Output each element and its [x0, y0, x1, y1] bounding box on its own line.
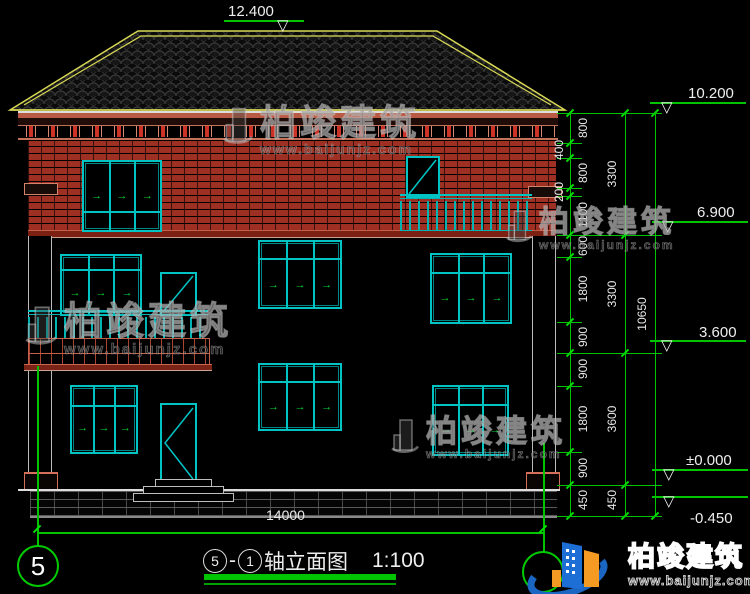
left-pilaster-plinth [24, 472, 58, 490]
window-opening-arrow-icon: → [77, 423, 88, 433]
window-mullion [93, 387, 95, 452]
window-opening-arrow-icon: → [122, 288, 133, 298]
title-separator: - [229, 549, 236, 573]
watermark-logo-icon [390, 416, 420, 464]
level-text: ±0.000 [686, 452, 732, 469]
dim-chain-overall [655, 113, 656, 516]
title-scale: 1:100 [372, 549, 425, 573]
dim-extension-line [557, 322, 582, 323]
window-mullion [286, 365, 288, 429]
dim-value: 3600 [605, 406, 619, 433]
window-mullion [482, 387, 484, 454]
dim-chain-inner [570, 113, 571, 516]
window-bot-right: →→→ [432, 385, 509, 456]
bottom-dim-line [37, 532, 544, 534]
window-mid-center: →→→ [258, 240, 342, 309]
title-underline-thin [204, 583, 396, 585]
dim-value: 900 [576, 359, 590, 379]
dim-value: 3300 [605, 161, 619, 188]
level-triangle-icon: ▽ [663, 468, 675, 481]
brand-logo-icon [524, 537, 620, 594]
dim-extension-line [557, 452, 582, 453]
window-opening-arrow-icon: → [489, 425, 500, 435]
dim-extension-line [557, 235, 662, 236]
window-bot-left: →→→ [70, 385, 138, 454]
dim-value: 800 [576, 118, 590, 138]
dim-extension-line [557, 485, 662, 486]
window-opening-arrow-icon: → [116, 191, 127, 201]
window-mullion [313, 365, 315, 429]
window-opening-arrow-icon: → [98, 423, 109, 433]
window-opening-arrow-icon: → [441, 425, 452, 435]
window-transom [434, 404, 507, 406]
window-opening-arrow-icon: → [465, 425, 476, 435]
window-opening-arrow-icon: → [466, 293, 477, 303]
window-opening-arrow-icon: → [268, 402, 279, 412]
dim-value: 3300 [605, 281, 619, 308]
level-triangle-icon: ▽ [662, 220, 674, 233]
dim-value: 450 [605, 490, 619, 510]
dim-value-overall: 10650 [635, 297, 649, 330]
window-transom [432, 272, 510, 274]
elevation-drawing: 12.400 ▽ →→→ →→→ →→→ [0, 0, 750, 594]
mid-balcony-slab [24, 364, 212, 371]
title-axis-end-bubble: 1 [238, 549, 262, 573]
window-mullion [88, 256, 90, 314]
brand-url: www.baijunjz.com [628, 573, 750, 588]
dim-value: 900 [576, 458, 590, 478]
dim-value: 1800 [576, 276, 590, 303]
axis-bubble-number: 5 [31, 551, 45, 582]
railing-balusters [400, 201, 532, 231]
window-top-left: →→→ [82, 160, 162, 232]
dim-chain-mid [625, 113, 626, 516]
ridge-level-triangle-icon: ▽ [277, 19, 289, 32]
top-balcony-railing [400, 194, 532, 231]
window-bot-center: →→→ [258, 363, 342, 431]
window-opening-arrow-icon: → [91, 191, 102, 201]
window-mid-right: →→→ [430, 253, 512, 324]
window-transom [260, 381, 340, 383]
ridge-level-line [224, 20, 304, 22]
window-opening-arrow-icon: → [321, 402, 332, 412]
dim-value: 1800 [576, 406, 590, 433]
dim-value: 200 [552, 182, 566, 202]
title-underline-thick [204, 574, 396, 580]
window-mullion [114, 387, 116, 452]
window-mullion [113, 256, 115, 314]
level-text: 10.200 [688, 85, 734, 102]
right-pilaster [532, 236, 556, 472]
window-opening-arrow-icon: → [96, 288, 107, 298]
dim-extension-line [557, 353, 662, 354]
title-name: 轴立面图 [264, 546, 348, 576]
title-axis-start-bubble: 5 [203, 549, 227, 573]
brand-block: 柏竣建筑 www.baijunjz.com [524, 537, 750, 594]
entry-step [133, 493, 234, 502]
dim-value: 900 [576, 327, 590, 347]
dim-value: 400 [552, 140, 566, 160]
dim-value: 800 [576, 163, 590, 183]
dim-extension-line [557, 113, 662, 114]
entry-door [160, 403, 197, 484]
dim-tick [33, 525, 41, 533]
window-mullion [313, 242, 315, 307]
window-transom [72, 405, 136, 407]
window-opening-arrow-icon: → [492, 293, 503, 303]
railing-balusters [28, 317, 208, 339]
window-opening-arrow-icon: → [70, 288, 81, 298]
window-opening-arrow-icon: → [294, 280, 305, 290]
level-text: 6.900 [697, 204, 735, 221]
window-transom [62, 269, 140, 271]
dim-tick [539, 525, 547, 533]
dim-extension-line [557, 516, 662, 517]
dim-extension-line [557, 257, 582, 258]
window-opening-arrow-icon: → [321, 280, 332, 290]
dim-value: 450 [576, 490, 590, 510]
window-mullion [483, 255, 485, 322]
window-opening-arrow-icon: → [142, 191, 153, 201]
window-transom [84, 211, 160, 213]
dim-extension-line [557, 386, 582, 387]
window-opening-arrow-icon: → [294, 402, 305, 412]
window-opening-arrow-icon: → [268, 280, 279, 290]
window-mid-left: →→→ [60, 254, 142, 316]
axis-line-left [37, 366, 39, 548]
left-pilaster-capital [24, 183, 58, 195]
balcony-door-top-right [406, 156, 440, 198]
level-triangle-icon: ▽ [661, 101, 673, 114]
cornice-dentils [20, 126, 556, 137]
mid-balcony-parapet [28, 338, 210, 365]
mid-balcony-railing [28, 310, 208, 339]
drawing-title: 5 - 1 轴立面图 1:100 [203, 546, 425, 576]
level-text: 3.600 [699, 324, 737, 341]
window-mullion [286, 242, 288, 307]
window-mullion [458, 387, 460, 454]
window-opening-arrow-icon: → [120, 423, 131, 433]
dim-value: 1100 [576, 202, 590, 228]
axis-bubble-left: 5 [17, 545, 59, 587]
window-opening-arrow-icon: → [440, 293, 451, 303]
ridge-level-text: 12.400 [228, 3, 274, 20]
dim-value: 600 [576, 236, 590, 256]
bottom-dim-value: 14000 [266, 507, 305, 523]
level-triangle-icon: ▽ [661, 339, 673, 352]
cornice-bed-mould [18, 138, 558, 140]
brand-name: 柏竣建筑 [628, 543, 750, 573]
cornice-shadow-band [18, 118, 558, 126]
level-text: -0.450 [690, 510, 733, 527]
window-mullion [458, 255, 460, 322]
level-triangle-icon: ▽ [663, 495, 675, 508]
window-transom [260, 258, 340, 260]
